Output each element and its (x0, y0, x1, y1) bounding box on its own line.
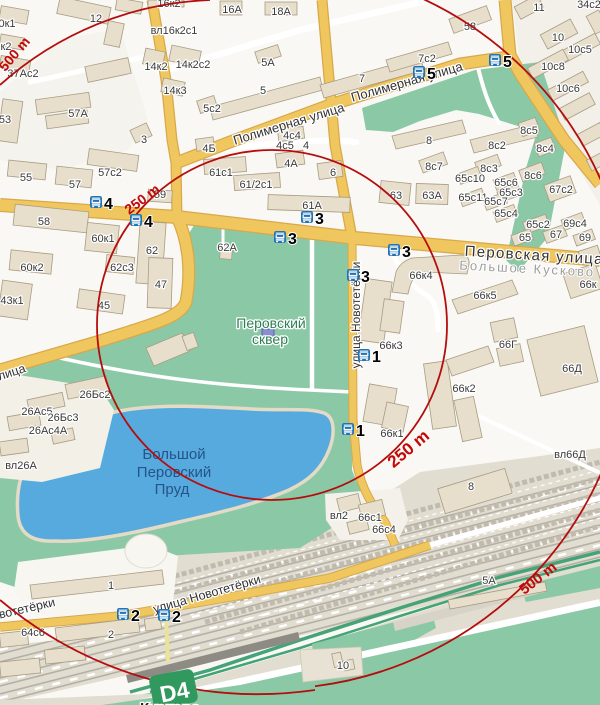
svg-text:66с1: 66с1 (358, 512, 382, 524)
svg-text:2: 2 (172, 609, 181, 626)
svg-text:61/2с1: 61/2с1 (239, 179, 272, 191)
svg-text:69: 69 (579, 232, 591, 244)
svg-text:26Бс2: 26Бс2 (79, 389, 110, 401)
svg-text:6: 6 (330, 167, 336, 179)
svg-text:26Бс3: 26Бс3 (47, 412, 78, 424)
svg-text:10с8: 10с8 (541, 61, 565, 73)
svg-text:66к2: 66к2 (452, 383, 475, 395)
svg-text:66к3: 66к3 (379, 340, 402, 352)
svg-text:Перовский: Перовский (137, 464, 211, 481)
svg-text:62с3: 62с3 (110, 262, 134, 274)
svg-text:Кусково: Кусково (140, 700, 200, 705)
svg-text:2: 2 (108, 629, 114, 641)
svg-text:1: 1 (108, 580, 114, 592)
svg-text:1: 1 (356, 423, 365, 440)
svg-text:Большой: Большой (142, 446, 205, 463)
svg-text:5А: 5А (261, 57, 275, 69)
svg-text:57: 57 (69, 179, 81, 191)
svg-text:62: 62 (146, 245, 158, 257)
svg-text:43к1: 43к1 (0, 295, 23, 307)
svg-text:66Г: 66Г (499, 339, 517, 351)
svg-text:66к4: 66к4 (409, 270, 432, 282)
svg-text:64с6: 64с6 (21, 627, 45, 639)
svg-text:45: 45 (98, 300, 110, 312)
svg-text:34с2: 34с2 (577, 0, 600, 11)
svg-text:63А: 63А (422, 190, 442, 202)
svg-text:7с2: 7с2 (418, 53, 436, 65)
svg-text:8: 8 (426, 135, 432, 147)
svg-text:47: 47 (155, 279, 167, 291)
svg-text:65: 65 (519, 232, 531, 244)
svg-text:5с2: 5с2 (203, 103, 221, 115)
svg-text:63: 63 (390, 190, 402, 202)
svg-text:8с7: 8с7 (425, 161, 443, 173)
svg-text:вл66Д: вл66Д (554, 449, 586, 461)
svg-text:Пруд: Пруд (155, 481, 190, 498)
svg-text:Перовский: Перовский (236, 315, 305, 331)
svg-text:65с4: 65с4 (494, 208, 518, 220)
svg-text:53: 53 (0, 114, 11, 126)
svg-text:3: 3 (361, 269, 370, 286)
svg-text:67: 67 (550, 229, 562, 241)
svg-text:сквер: сквер (252, 331, 288, 347)
svg-text:8с5: 8с5 (520, 125, 538, 137)
svg-text:65с10: 65с10 (455, 173, 485, 185)
svg-text:11: 11 (533, 2, 544, 14)
svg-text:10с5: 10с5 (568, 44, 592, 56)
svg-text:69с4: 69с4 (563, 218, 587, 230)
svg-text:4: 4 (104, 196, 113, 213)
svg-text:14к3: 14к3 (163, 85, 186, 97)
svg-text:61с1: 61с1 (209, 167, 233, 179)
svg-text:14к2: 14к2 (144, 61, 167, 73)
svg-text:57с2: 57с2 (98, 167, 122, 179)
svg-text:62А: 62А (217, 242, 237, 254)
svg-text:10с6: 10с6 (556, 83, 580, 95)
svg-text:10: 10 (337, 660, 349, 672)
svg-text:3: 3 (141, 134, 147, 146)
svg-text:65с2: 65с2 (526, 219, 550, 231)
svg-text:8с6: 8с6 (524, 170, 542, 182)
svg-text:3: 3 (288, 231, 297, 248)
svg-text:66к1: 66к1 (380, 428, 403, 440)
svg-text:1: 1 (372, 349, 381, 366)
svg-text:58: 58 (38, 216, 50, 228)
svg-text:5: 5 (260, 85, 266, 97)
svg-text:4: 4 (303, 140, 309, 152)
svg-text:65с7: 65с7 (484, 196, 508, 208)
svg-text:55: 55 (20, 172, 32, 184)
svg-text:67с2: 67с2 (549, 184, 573, 196)
svg-text:57А: 57А (68, 108, 88, 120)
svg-text:5: 5 (503, 54, 512, 71)
svg-text:10: 10 (552, 32, 564, 44)
svg-text:8: 8 (468, 481, 474, 493)
svg-text:8с4: 8с4 (536, 143, 554, 155)
svg-text:7: 7 (359, 73, 365, 85)
svg-text:2: 2 (131, 608, 140, 625)
svg-text:60к1: 60к1 (91, 233, 114, 245)
svg-text:14к2с2: 14к2с2 (176, 59, 211, 71)
svg-text:26Ас4А: 26Ас4А (29, 425, 68, 437)
svg-text:вл16к2с1: вл16к2с1 (151, 25, 198, 37)
svg-text:4: 4 (144, 214, 153, 231)
svg-text:вл2: вл2 (330, 510, 348, 522)
svg-text:60к2: 60к2 (20, 262, 43, 274)
svg-text:0к1: 0к1 (0, 18, 16, 30)
svg-text:5: 5 (427, 66, 436, 83)
svg-text:18А: 18А (271, 6, 291, 18)
svg-text:8с2: 8с2 (488, 140, 506, 152)
svg-text:66с4: 66с4 (372, 524, 396, 536)
svg-text:3: 3 (315, 211, 324, 228)
svg-text:16А: 16А (222, 4, 242, 16)
svg-text:4А: 4А (284, 158, 298, 170)
svg-text:66Д: 66Д (562, 363, 582, 375)
svg-text:3: 3 (402, 244, 411, 261)
svg-text:66к: 66к (579, 279, 596, 291)
svg-text:4Б: 4Б (202, 143, 215, 155)
svg-text:вл26А: вл26А (5, 460, 37, 472)
svg-text:66к5: 66к5 (473, 290, 496, 302)
svg-text:5А: 5А (482, 575, 496, 587)
